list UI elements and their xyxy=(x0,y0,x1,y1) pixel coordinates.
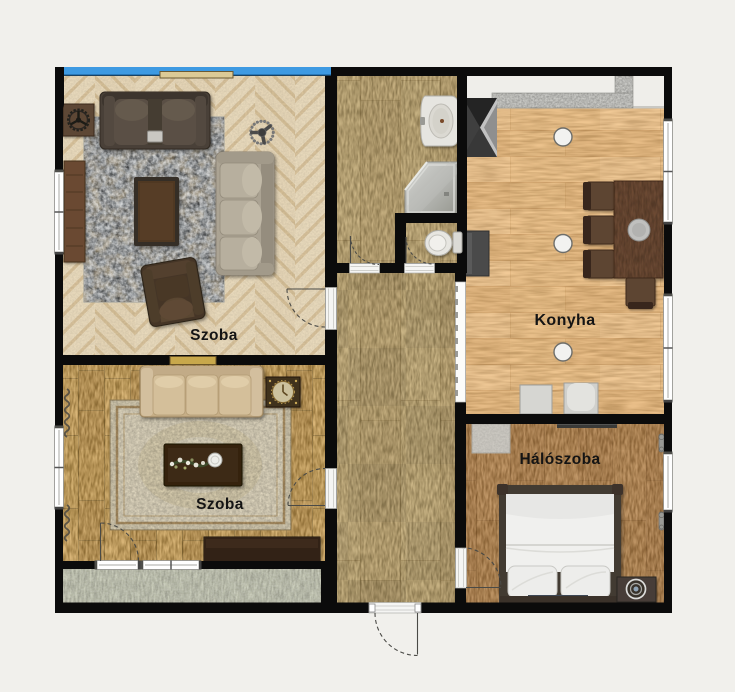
svg-text:Konyha: Konyha xyxy=(534,312,595,329)
svg-text:Hálószoba: Hálószoba xyxy=(519,451,600,468)
svg-text:Szoba: Szoba xyxy=(190,327,238,344)
svg-text:Szoba: Szoba xyxy=(196,496,244,513)
